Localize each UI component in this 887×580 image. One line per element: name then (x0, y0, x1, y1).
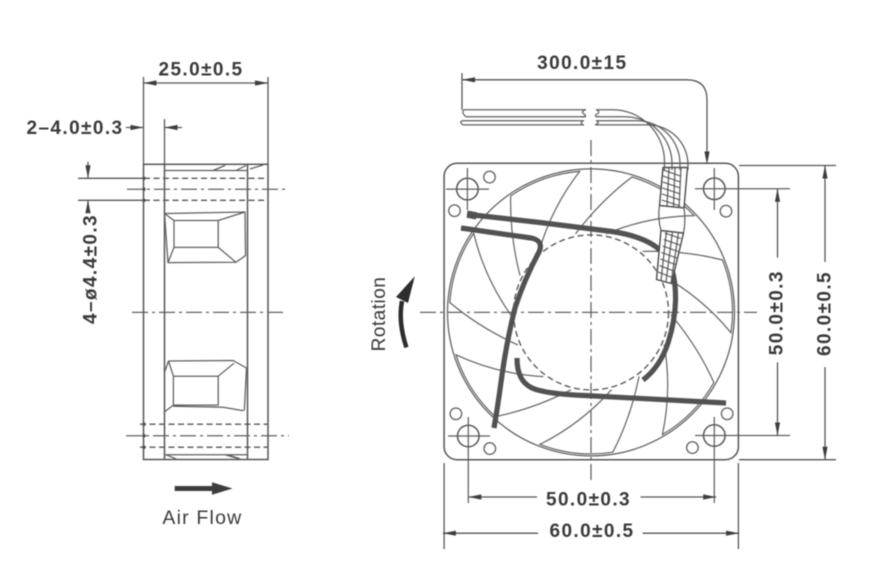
svg-text:4–ø4.4±0.3: 4–ø4.4±0.3 (81, 214, 102, 324)
svg-text:300.0±15: 300.0±15 (537, 53, 627, 74)
svg-text:Rotation: Rotation (369, 277, 390, 352)
svg-text:Air Flow: Air Flow (162, 507, 242, 529)
svg-text:60.0±0.5: 60.0±0.5 (549, 521, 634, 542)
svg-text:25.0±0.5: 25.0±0.5 (158, 60, 243, 81)
svg-text:50.0±0.3: 50.0±0.3 (546, 490, 631, 511)
svg-text:50.0±0.3: 50.0±0.3 (767, 270, 788, 355)
svg-text:2–4.0±0.3: 2–4.0±0.3 (27, 118, 124, 139)
svg-text:60.0±0.5: 60.0±0.5 (814, 271, 835, 356)
